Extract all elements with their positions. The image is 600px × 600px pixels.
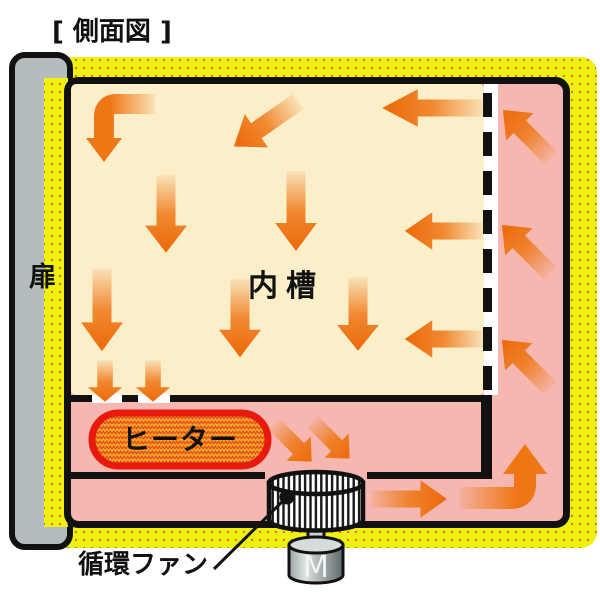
bottom-partition-left bbox=[71, 472, 265, 479]
page-title: [ 側面図 ] bbox=[52, 17, 172, 47]
motor-label: M bbox=[303, 550, 329, 585]
diagram-canvas: ヒーター M [ 側面図 ] 扉 内槽 循環ファン bbox=[0, 0, 600, 600]
fan-callout-dot bbox=[280, 490, 295, 505]
door-label: 扉 bbox=[29, 262, 56, 293]
motor: M bbox=[289, 537, 343, 585]
bottom-partition-right bbox=[367, 472, 481, 479]
heater-compartment-right-wall bbox=[481, 395, 492, 479]
oven-side-view-diagram: ヒーター M [ 側面図 ] 扉 内槽 循環ファン bbox=[0, 0, 600, 600]
circulation-fan-label: 循環ファン bbox=[78, 550, 208, 580]
heater-label: ヒーター bbox=[122, 423, 238, 456]
inner-chamber-label: 内槽 bbox=[248, 269, 324, 304]
chamber-bottom-wall bbox=[71, 395, 484, 402]
